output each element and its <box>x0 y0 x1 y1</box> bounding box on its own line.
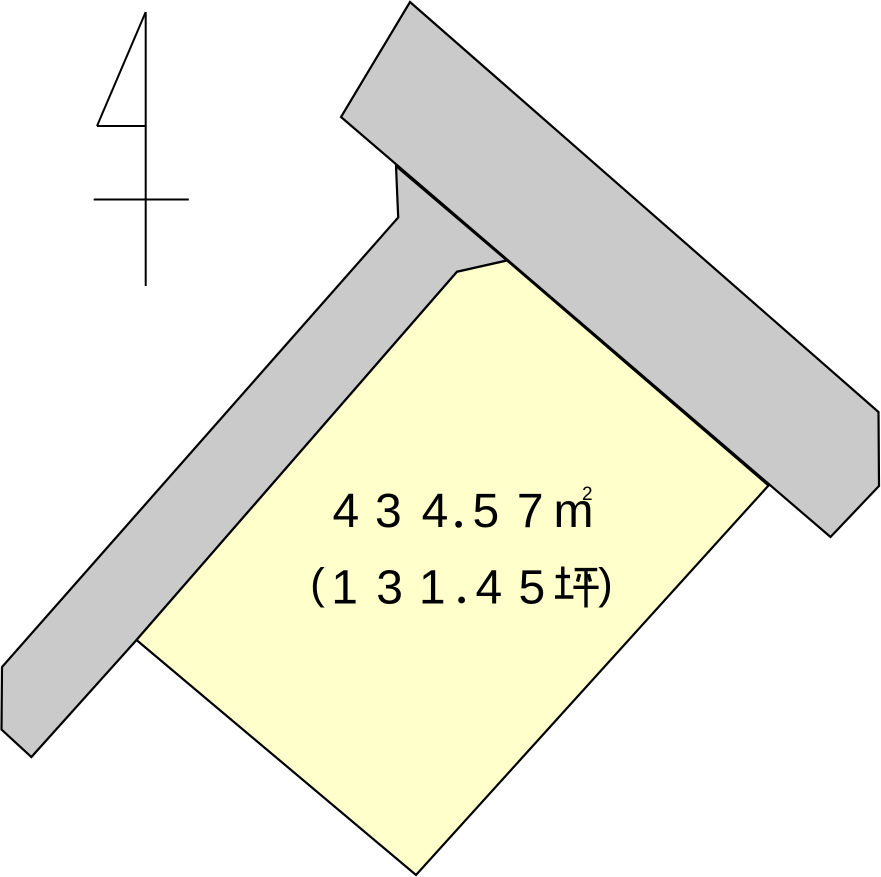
svg-text:4: 4 <box>422 485 449 538</box>
svg-text:): ) <box>598 559 613 608</box>
svg-text:2: 2 <box>582 484 593 505</box>
svg-text:3: 3 <box>376 562 403 615</box>
svg-text:4: 4 <box>475 562 502 615</box>
svg-text:1: 1 <box>419 562 446 615</box>
svg-text:3: 3 <box>375 485 402 538</box>
svg-text:4: 4 <box>332 485 359 538</box>
svg-text:1: 1 <box>331 562 358 615</box>
svg-text:7: 7 <box>517 485 544 538</box>
svg-text:(: ( <box>310 559 325 608</box>
svg-text:5: 5 <box>519 562 546 615</box>
svg-text:5: 5 <box>473 485 500 538</box>
